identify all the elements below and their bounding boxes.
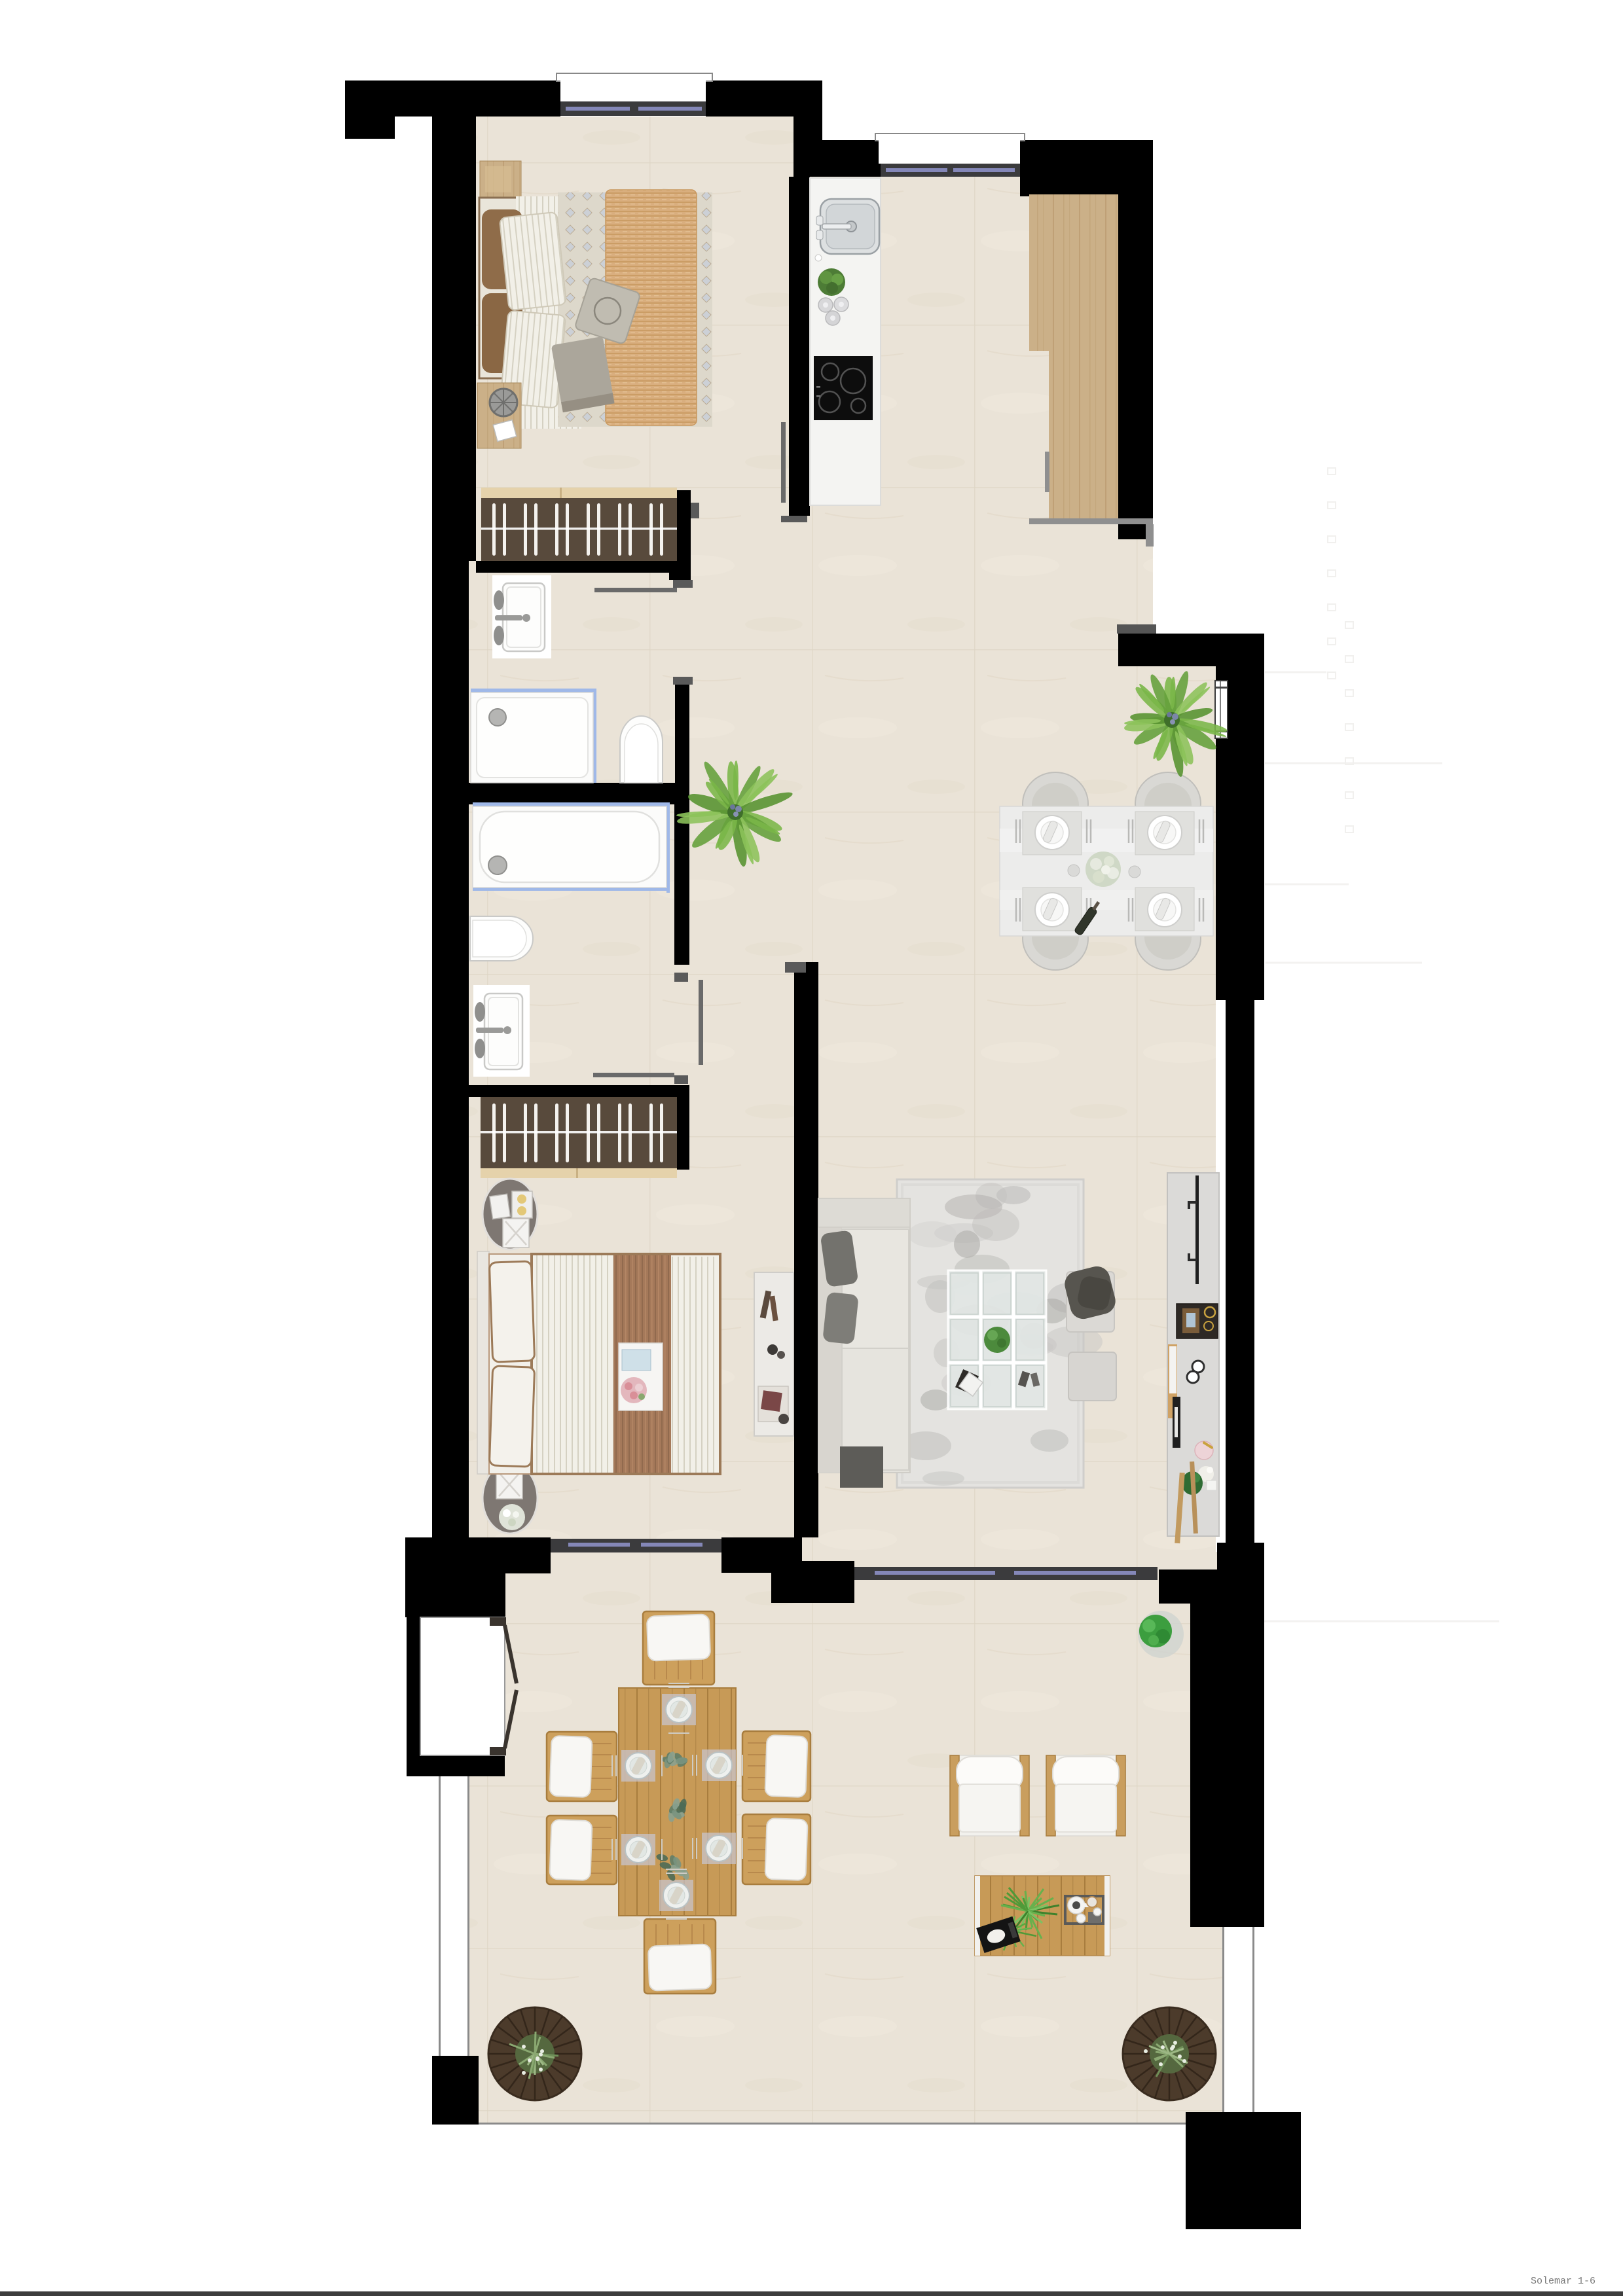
- svg-text:Solemar 1-6: Solemar 1-6: [1531, 2276, 1596, 2287]
